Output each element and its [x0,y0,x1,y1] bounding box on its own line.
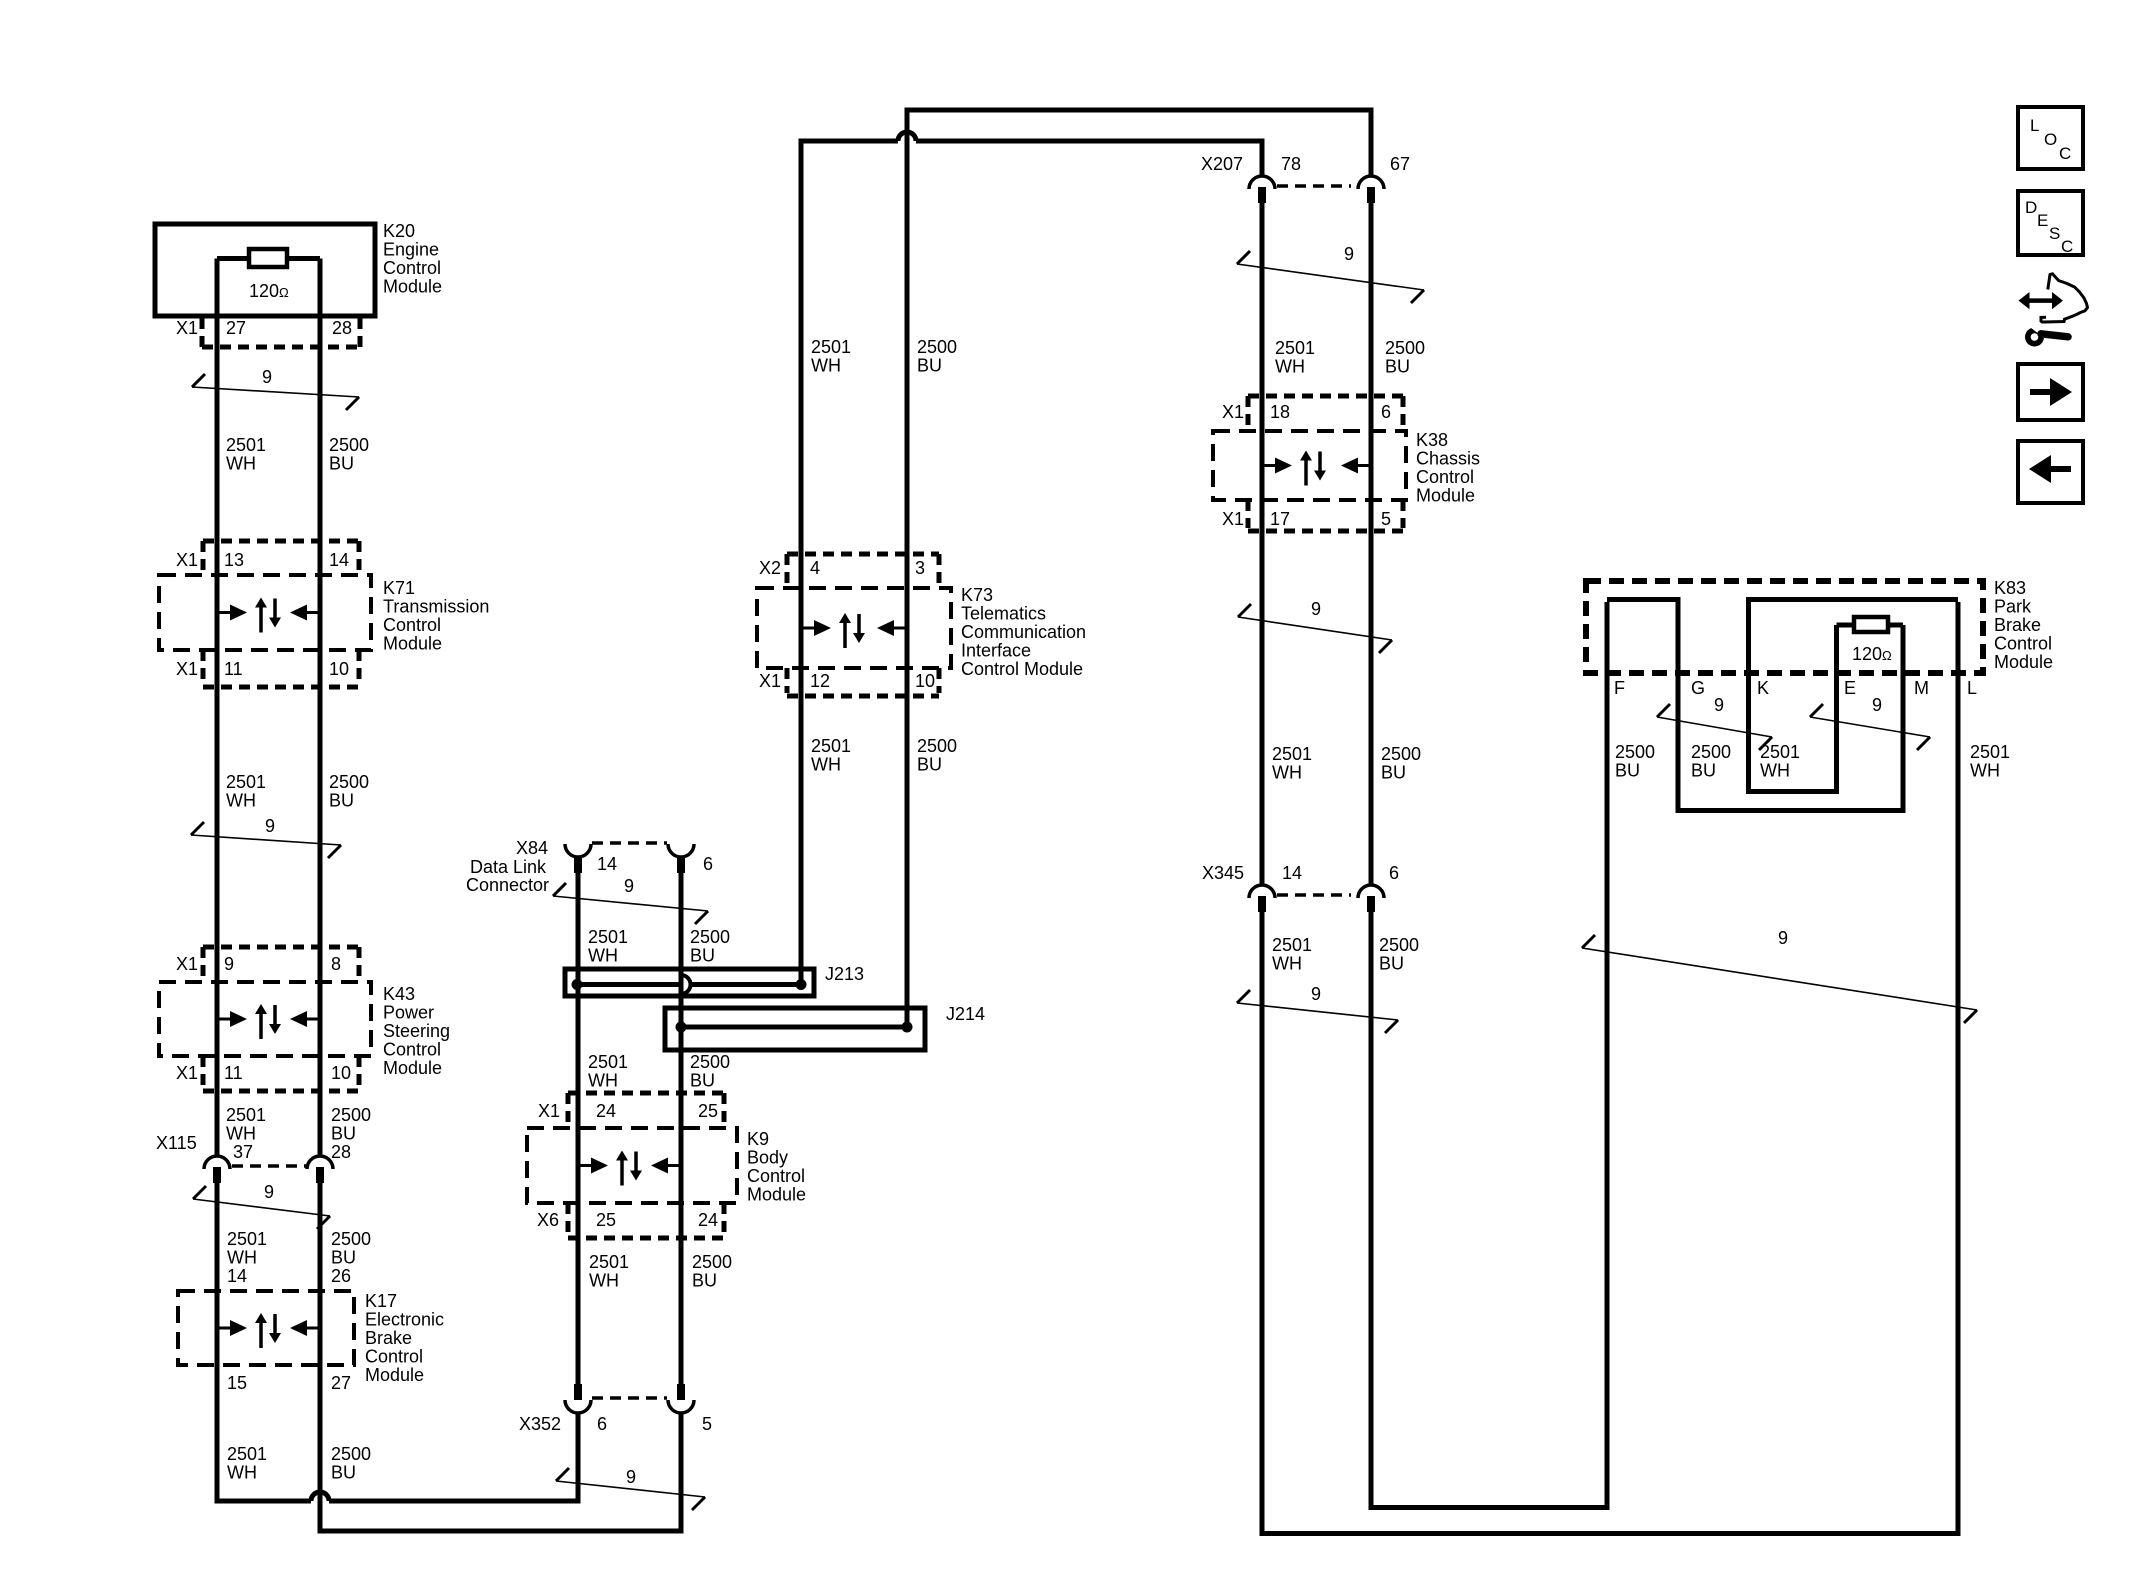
svg-text:WH: WH [811,755,841,775]
svg-text:24: 24 [596,1101,616,1121]
svg-text:2500: 2500 [1615,742,1655,762]
svg-text:10: 10 [329,659,349,679]
svg-text:Communication: Communication [961,622,1086,642]
svg-text:K71: K71 [383,578,415,598]
svg-text:WH: WH [588,946,618,966]
svg-text:2500: 2500 [690,1052,730,1072]
svg-text:9: 9 [264,1182,274,1202]
svg-text:WH: WH [588,1071,618,1091]
svg-text:BU: BU [331,1463,356,1483]
svg-text:K83: K83 [1994,578,2026,598]
svg-text:WH: WH [1275,357,1305,377]
svg-text:L: L [1967,678,1977,698]
svg-text:6: 6 [597,1414,607,1434]
svg-text:D: D [2025,198,2037,217]
svg-text:BU: BU [692,1271,717,1291]
svg-text:WH: WH [1272,763,1302,783]
svg-text:Transmission: Transmission [383,597,489,617]
svg-text:Module: Module [383,277,442,297]
svg-text:37: 37 [233,1142,253,1162]
svg-text:2500: 2500 [1691,742,1731,762]
svg-text:8: 8 [331,954,341,974]
svg-text:Data Link: Data Link [470,857,547,877]
svg-text:2501: 2501 [588,927,628,947]
svg-text:Control: Control [747,1166,805,1186]
svg-text:Ω: Ω [1882,648,1892,663]
svg-text:27: 27 [331,1373,351,1393]
svg-text:Body: Body [747,1148,788,1168]
svg-text:2500: 2500 [1379,935,1419,955]
svg-text:Electronic: Electronic [365,1310,444,1330]
svg-text:X352: X352 [519,1414,561,1434]
svg-text:2500: 2500 [1385,338,1425,358]
svg-text:X1: X1 [176,1063,198,1083]
svg-text:WH: WH [1970,761,2000,781]
svg-text:C: C [2061,237,2073,256]
svg-text:Engine: Engine [383,240,439,260]
svg-text:2501: 2501 [588,1052,628,1072]
svg-text:2500: 2500 [329,435,369,455]
svg-text:9: 9 [626,1467,636,1487]
svg-text:2500: 2500 [690,927,730,947]
svg-text:2501: 2501 [811,736,851,756]
svg-text:C: C [2059,144,2071,163]
svg-text:24: 24 [698,1210,718,1230]
svg-text:2501: 2501 [1272,935,1312,955]
svg-text:X6: X6 [537,1210,559,1230]
svg-text:WH: WH [227,1248,257,1268]
svg-text:J213: J213 [825,964,864,984]
svg-text:2501: 2501 [226,1105,266,1125]
svg-text:Module: Module [747,1185,806,1205]
svg-text:2501: 2501 [227,1444,267,1464]
svg-text:3: 3 [915,558,925,578]
svg-text:120: 120 [249,281,279,301]
svg-text:K20: K20 [383,221,415,241]
svg-text:F: F [1614,678,1625,698]
svg-text:M: M [1914,678,1929,698]
svg-text:2501: 2501 [811,337,851,357]
svg-text:Steering: Steering [383,1021,450,1041]
svg-text:X1: X1 [176,318,198,338]
svg-text:10: 10 [331,1063,351,1083]
svg-text:X1: X1 [176,550,198,570]
svg-text:Control: Control [1994,634,2052,654]
svg-text:15: 15 [227,1373,247,1393]
svg-text:Module: Module [365,1365,424,1385]
svg-text:25: 25 [698,1101,718,1121]
svg-text:Chassis: Chassis [1416,449,1480,469]
svg-text:S: S [2049,224,2060,243]
svg-text:BU: BU [331,1248,356,1268]
svg-text:26: 26 [331,1266,351,1286]
svg-text:X1: X1 [176,659,198,679]
svg-text:14: 14 [329,550,349,570]
svg-text:X345: X345 [1202,863,1244,883]
svg-text:WH: WH [1272,954,1302,974]
svg-text:2501: 2501 [226,772,266,792]
svg-text:WH: WH [226,454,256,474]
svg-text:11: 11 [224,659,243,679]
svg-text:K38: K38 [1416,430,1448,450]
svg-text:BU: BU [1381,763,1406,783]
svg-text:BU: BU [917,755,942,775]
svg-text:L: L [2030,116,2039,135]
svg-text:Module: Module [1994,652,2053,672]
svg-text:J214: J214 [946,1004,985,1024]
svg-text:11: 11 [224,1063,243,1083]
svg-text:14: 14 [1282,863,1302,883]
svg-text:6: 6 [703,854,713,874]
svg-text:WH: WH [226,1124,256,1144]
svg-text:2500: 2500 [329,772,369,792]
svg-text:9: 9 [624,876,634,896]
svg-text:9: 9 [265,816,275,836]
svg-text:G: G [1691,678,1705,698]
svg-text:2501: 2501 [589,1252,629,1272]
svg-text:X1: X1 [538,1101,560,1121]
svg-text:Interface: Interface [961,641,1031,661]
svg-text:25: 25 [596,1210,616,1230]
svg-text:Power: Power [383,1003,434,1023]
svg-text:BU: BU [690,1071,715,1091]
svg-text:X2: X2 [759,558,781,578]
svg-text:X207: X207 [1201,154,1243,174]
svg-text:13: 13 [224,550,244,570]
svg-text:WH: WH [226,791,256,811]
svg-text:Control: Control [383,258,441,278]
svg-text:5: 5 [1381,509,1391,529]
svg-text:X1: X1 [1222,402,1244,422]
svg-text:9: 9 [1714,695,1724,715]
svg-text:X115: X115 [156,1133,197,1153]
svg-text:K17: K17 [365,1291,397,1311]
svg-text:WH: WH [811,356,841,376]
svg-text:67: 67 [1390,154,1410,174]
svg-text:2501: 2501 [1272,744,1312,764]
svg-text:2501: 2501 [1970,742,2010,762]
svg-text:28: 28 [332,318,352,338]
svg-text:BU: BU [329,454,354,474]
svg-text:10: 10 [915,671,935,691]
svg-text:9: 9 [1344,244,1354,264]
svg-text:K9: K9 [747,1129,769,1149]
svg-text:2501: 2501 [1760,742,1800,762]
svg-text:WH: WH [589,1271,619,1291]
svg-text:78: 78 [1281,154,1301,174]
svg-text:Module: Module [383,634,442,654]
svg-text:K: K [1757,678,1769,698]
svg-text:14: 14 [227,1266,247,1286]
svg-text:2500: 2500 [917,337,957,357]
svg-text:Control Module: Control Module [961,659,1083,679]
svg-text:9: 9 [1778,928,1788,948]
svg-text:12: 12 [810,671,830,691]
svg-text:2500: 2500 [1381,744,1421,764]
svg-text:E: E [1844,678,1856,698]
svg-text:5: 5 [702,1414,712,1434]
svg-text:X1: X1 [759,671,781,691]
svg-text:WH: WH [227,1463,257,1483]
svg-text:2500: 2500 [917,736,957,756]
svg-text:9: 9 [1872,695,1882,715]
svg-text:BU: BU [1385,357,1410,377]
svg-text:Control: Control [365,1347,423,1367]
svg-text:Brake: Brake [365,1328,412,1348]
svg-text:Telematics: Telematics [961,604,1046,624]
svg-text:9: 9 [224,954,234,974]
svg-text:9: 9 [1311,599,1321,619]
svg-text:BU: BU [1615,761,1640,781]
svg-text:Control: Control [383,1040,441,1060]
svg-text:120: 120 [1852,644,1882,664]
svg-text:X84: X84 [516,838,548,858]
svg-text:Control: Control [383,615,441,635]
svg-text:18: 18 [1270,402,1290,422]
svg-text:Control: Control [1416,467,1474,487]
svg-text:K73: K73 [961,585,993,605]
svg-text:2500: 2500 [331,1105,371,1125]
svg-text:O: O [2044,130,2057,149]
svg-text:2501: 2501 [226,435,266,455]
svg-text:2500: 2500 [692,1252,732,1272]
svg-text:14: 14 [597,854,617,874]
svg-text:2501: 2501 [227,1229,267,1249]
svg-text:17: 17 [1270,509,1290,529]
svg-text:2501: 2501 [1275,338,1315,358]
svg-text:2500: 2500 [331,1229,371,1249]
svg-text:BU: BU [331,1124,356,1144]
svg-text:X1: X1 [1222,509,1244,529]
svg-text:Ω: Ω [279,285,289,300]
svg-text:BU: BU [690,946,715,966]
svg-text:Module: Module [1416,486,1475,506]
svg-text:6: 6 [1389,863,1399,883]
svg-text:4: 4 [810,558,820,578]
svg-text:Park: Park [1994,597,2032,617]
svg-text:9: 9 [262,367,272,387]
svg-text:Brake: Brake [1994,615,2041,635]
svg-text:E: E [2037,211,2048,230]
svg-text:Module: Module [383,1058,442,1078]
svg-text:WH: WH [1760,761,1790,781]
svg-text:BU: BU [329,791,354,811]
svg-text:K43: K43 [383,984,415,1004]
svg-text:9: 9 [1311,984,1321,1004]
svg-text:28: 28 [331,1142,351,1162]
svg-text:X1: X1 [176,954,198,974]
svg-text:6: 6 [1381,402,1391,422]
svg-text:BU: BU [1379,954,1404,974]
svg-text:27: 27 [226,318,246,338]
svg-text:2500: 2500 [331,1444,371,1464]
svg-text:Connector: Connector [466,875,549,895]
svg-text:BU: BU [917,356,942,376]
svg-text:BU: BU [1691,761,1716,781]
